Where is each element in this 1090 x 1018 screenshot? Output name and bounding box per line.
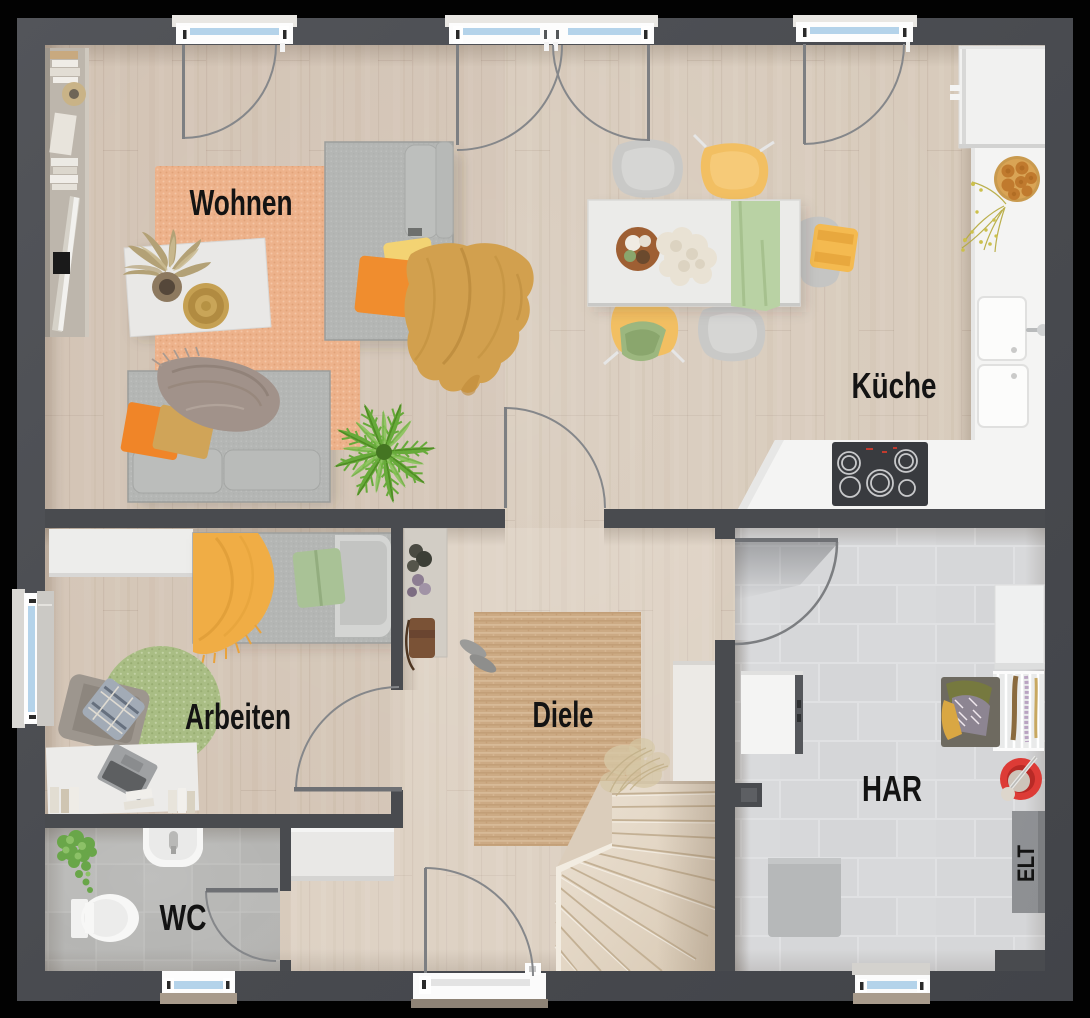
svg-text:Diele: Diele [533, 694, 594, 735]
svg-text:Arbeiten: Arbeiten [185, 696, 291, 737]
svg-text:ELT: ELT [1013, 845, 1040, 882]
svg-text:Küche: Küche [852, 365, 937, 406]
svg-text:HAR: HAR [862, 768, 922, 809]
svg-text:Wohnen: Wohnen [190, 182, 293, 223]
svg-text:WC: WC [160, 897, 207, 938]
